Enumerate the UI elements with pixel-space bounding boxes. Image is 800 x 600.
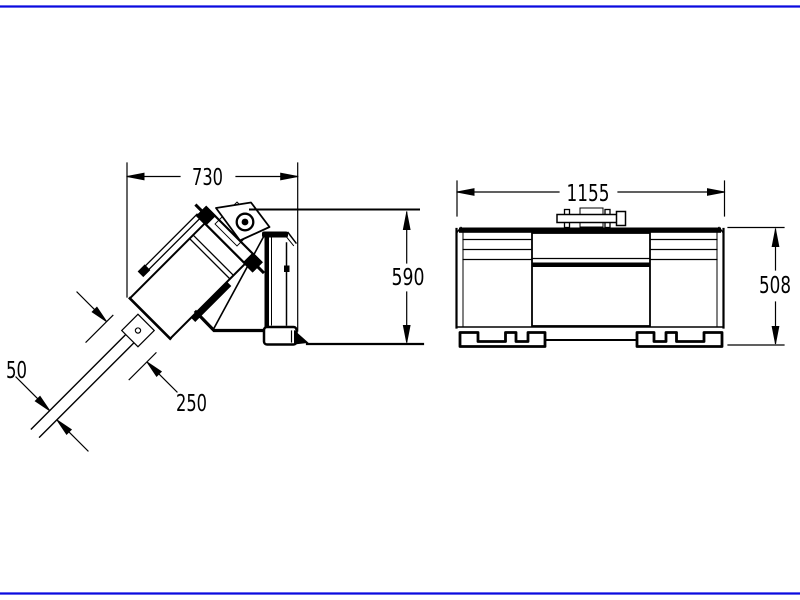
flange-stud xyxy=(196,206,201,211)
technical-drawing-canvas: 730 590 250 50 xyxy=(0,0,800,600)
auger-drive-unit xyxy=(2,201,267,466)
mount-box-band xyxy=(532,263,650,268)
dim-arrow xyxy=(772,327,779,344)
shaft-edge-line xyxy=(40,328,149,437)
dim-arrow xyxy=(457,189,474,196)
plate-top-rail xyxy=(459,228,721,233)
latch-notch xyxy=(284,266,290,273)
flange-stud xyxy=(258,267,263,272)
shaft-diameter-label: 50 xyxy=(6,358,27,384)
front-view-height-label: 508 xyxy=(759,273,791,299)
mount-frame-plate xyxy=(457,228,724,347)
dim-arrow xyxy=(708,189,725,196)
dim-arrow xyxy=(403,326,410,343)
plate-corner-chamfer xyxy=(288,233,296,244)
plate-front-face xyxy=(265,237,270,328)
skid-foot-right xyxy=(637,333,722,347)
dim-arrow xyxy=(127,173,144,180)
side-view-width-label: 730 xyxy=(192,165,223,191)
support-strap xyxy=(196,312,265,331)
pin-cross-bar xyxy=(557,215,624,223)
front-view: 1155 508 xyxy=(457,181,792,347)
extension-tick xyxy=(86,315,113,342)
side-view: 730 590 250 50 xyxy=(2,163,424,466)
dimension-590: 590 xyxy=(250,210,425,345)
dim-arrow xyxy=(403,213,410,230)
top-pin-assembly xyxy=(557,208,626,228)
gearbox-mount-box xyxy=(532,233,650,326)
shaft-edge-line xyxy=(31,320,140,429)
dimension-50: 50 xyxy=(6,358,88,451)
dim-arrow xyxy=(92,307,109,324)
side-view-height-label: 590 xyxy=(392,265,425,291)
housing-diameter-label: 250 xyxy=(176,391,207,417)
dim-arrow xyxy=(772,230,779,247)
dim-arrow xyxy=(55,418,72,435)
drawing-sheet: 730 590 250 50 xyxy=(0,0,800,600)
dim-arrow xyxy=(281,173,298,180)
dimension-1155: 1155 xyxy=(457,181,725,216)
latch-wedge xyxy=(295,331,308,344)
pin-end-cap xyxy=(617,212,626,226)
plate-top-cap xyxy=(262,232,288,238)
dimension-508: 508 xyxy=(728,228,791,346)
dim-arrow xyxy=(145,360,162,377)
pivot-pin xyxy=(242,219,249,226)
skid-foot-left xyxy=(460,333,545,347)
dim-arrow xyxy=(35,396,52,413)
front-view-width-label: 1155 xyxy=(567,181,610,207)
